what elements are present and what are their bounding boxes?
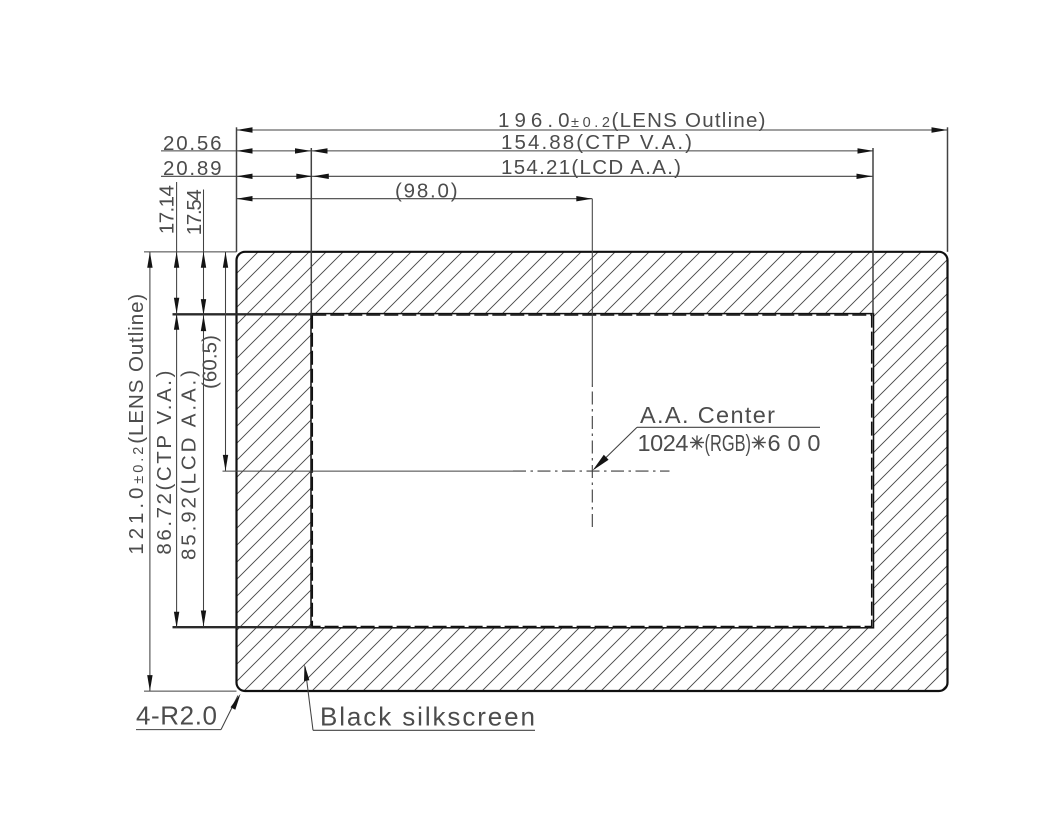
svg-text:17.14: 17.14 bbox=[156, 185, 179, 234]
svg-text:4-R2.0: 4-R2.0 bbox=[136, 700, 217, 730]
svg-text:(LENS Outline): (LENS Outline) bbox=[612, 109, 766, 132]
svg-text:196.0: 196.0 bbox=[498, 109, 570, 132]
svg-text:154.88(CTP V.A.): 154.88(CTP V.A.) bbox=[501, 131, 692, 154]
svg-text:600: 600 bbox=[768, 430, 821, 456]
svg-text:A.A. Center: A.A. Center bbox=[640, 402, 775, 428]
svg-text:17.54: 17.54 bbox=[183, 189, 206, 235]
svg-text:154.21(LCD A.A.): 154.21(LCD A.A.) bbox=[501, 156, 681, 179]
svg-text:(60.5): (60.5) bbox=[199, 335, 222, 389]
svg-text:(RGB): (RGB) bbox=[705, 430, 752, 456]
svg-text:(98.0): (98.0) bbox=[395, 179, 458, 202]
svg-text:Black silkscreen: Black silkscreen bbox=[320, 702, 535, 732]
svg-text:1024: 1024 bbox=[638, 430, 689, 456]
svg-text:86.72(CTP V.A.): 86.72(CTP V.A.) bbox=[153, 371, 176, 555]
svg-text:85.92(LCD A.A.): 85.92(LCD A.A.) bbox=[177, 370, 200, 560]
svg-text:121.0±0.2(LENS Outline): 121.0±0.2(LENS Outline) bbox=[125, 294, 148, 555]
svg-text:20.56: 20.56 bbox=[163, 132, 222, 155]
svg-text:20.89: 20.89 bbox=[163, 157, 222, 180]
svg-text:±0.2: ±0.2 bbox=[571, 115, 610, 131]
